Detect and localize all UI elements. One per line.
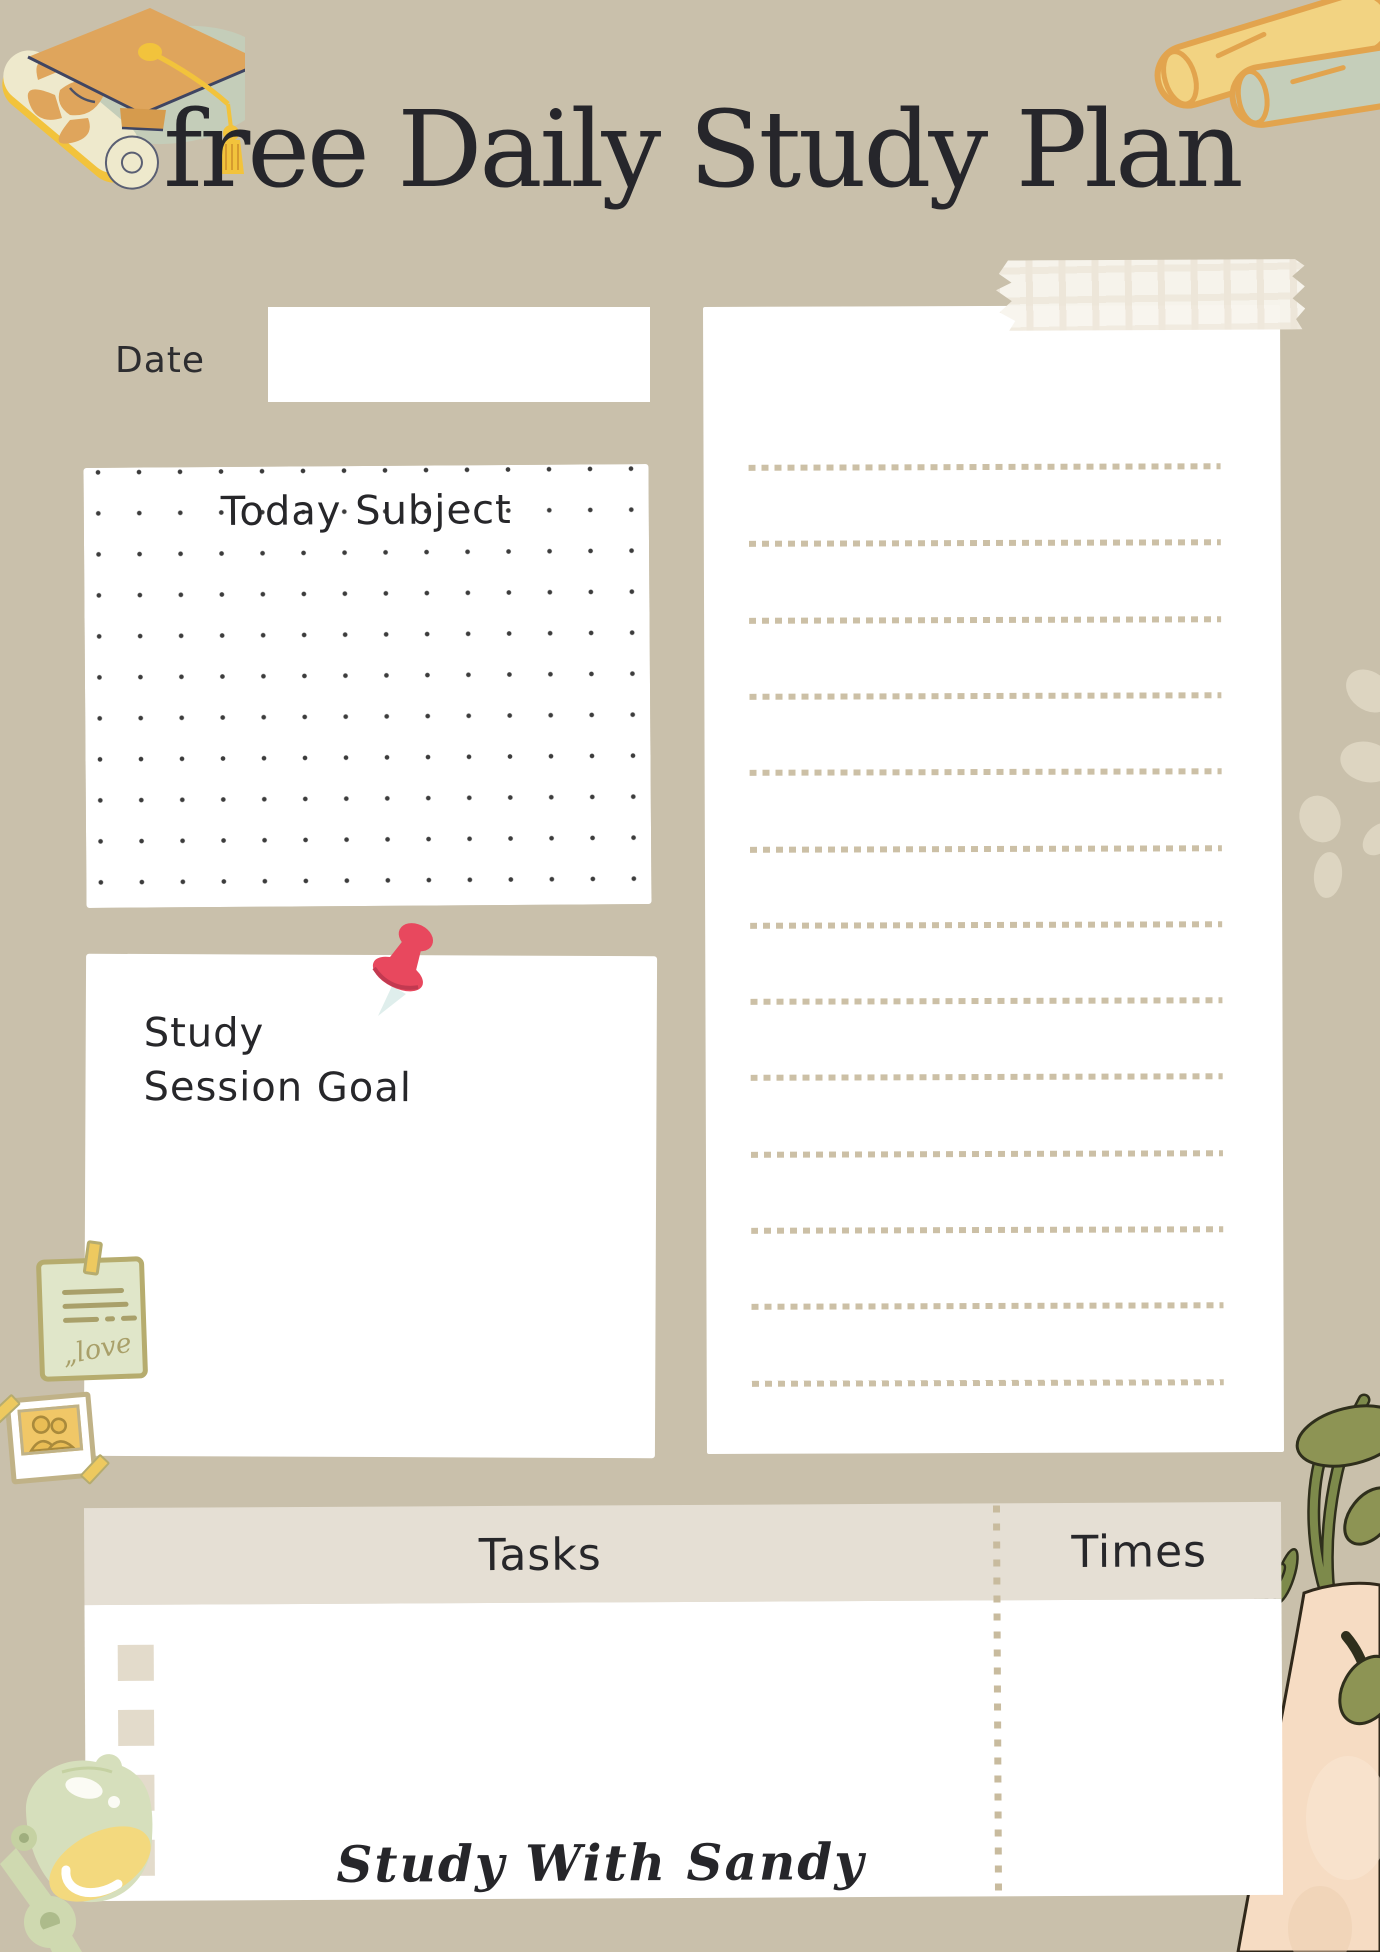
- polaroid-tape: [80, 1454, 111, 1485]
- date-input-box[interactable]: [268, 307, 650, 402]
- notes-panel[interactable]: [703, 305, 1284, 1454]
- brand-text: Study With Sandy: [251, 1832, 951, 1895]
- sticky-note-text: „love: [48, 1325, 146, 1373]
- blob-accent: [1336, 736, 1380, 788]
- notes-ruled-line: [750, 845, 1222, 853]
- sticky-note-line: [62, 1288, 124, 1295]
- notes-ruled-line: [751, 1150, 1223, 1158]
- notes-ruled-line: [751, 1226, 1223, 1234]
- sticky-note-tape: [83, 1240, 104, 1276]
- notes-ruled-line: [749, 692, 1221, 700]
- sticky-note-line: [63, 1317, 99, 1323]
- sticky-note-icon: „love: [36, 1256, 148, 1382]
- blob-accent: [1292, 789, 1348, 849]
- notes-ruled-line: [749, 616, 1221, 624]
- blob-accent: [1312, 851, 1345, 900]
- times-column-header: Times: [989, 1526, 1289, 1579]
- goal-input-box[interactable]: Study Session Goal: [84, 954, 657, 1458]
- tasks-column-header: Tasks: [390, 1529, 690, 1582]
- washi-tape-icon: [992, 255, 1305, 334]
- notes-ruled-line: [750, 997, 1222, 1005]
- polaroid-photo-icon: [4, 1391, 97, 1484]
- sticky-note-line: [62, 1302, 128, 1309]
- notes-ruled-line: [749, 463, 1221, 471]
- sticky-note-line: [121, 1315, 137, 1321]
- polaroid-picture: [17, 1404, 83, 1455]
- subject-label: Today Subject: [84, 486, 649, 536]
- daily-study-plan-page: free Daily Study Plan Date Today Subject…: [0, 0, 1380, 1952]
- notes-ruled-line: [751, 1302, 1223, 1310]
- notes-ruled-line: [750, 921, 1222, 929]
- notes-ruled-line: [751, 1074, 1223, 1082]
- notes-ruled-line: [749, 540, 1221, 548]
- tasks-table: Tasks Times Study With Sandy: [84, 1502, 1283, 1901]
- notes-ruled-line: [752, 1379, 1224, 1387]
- page-title: free Daily Study Plan: [77, 88, 1327, 211]
- goal-label-line2: Session Goal: [143, 1060, 412, 1115]
- task-checkbox[interactable]: [118, 1645, 154, 1681]
- sticky-note-line: [105, 1316, 115, 1321]
- subject-input-box[interactable]: Today Subject: [83, 464, 651, 908]
- notes-ruled-line: [750, 768, 1222, 776]
- blob-accent: [1356, 816, 1380, 861]
- desk-lamp-icon: [0, 1742, 175, 1952]
- task-checkbox[interactable]: [118, 1710, 154, 1746]
- push-pin-icon: [352, 912, 447, 1024]
- blob-accent: [1338, 661, 1380, 722]
- date-label: Date: [115, 340, 205, 381]
